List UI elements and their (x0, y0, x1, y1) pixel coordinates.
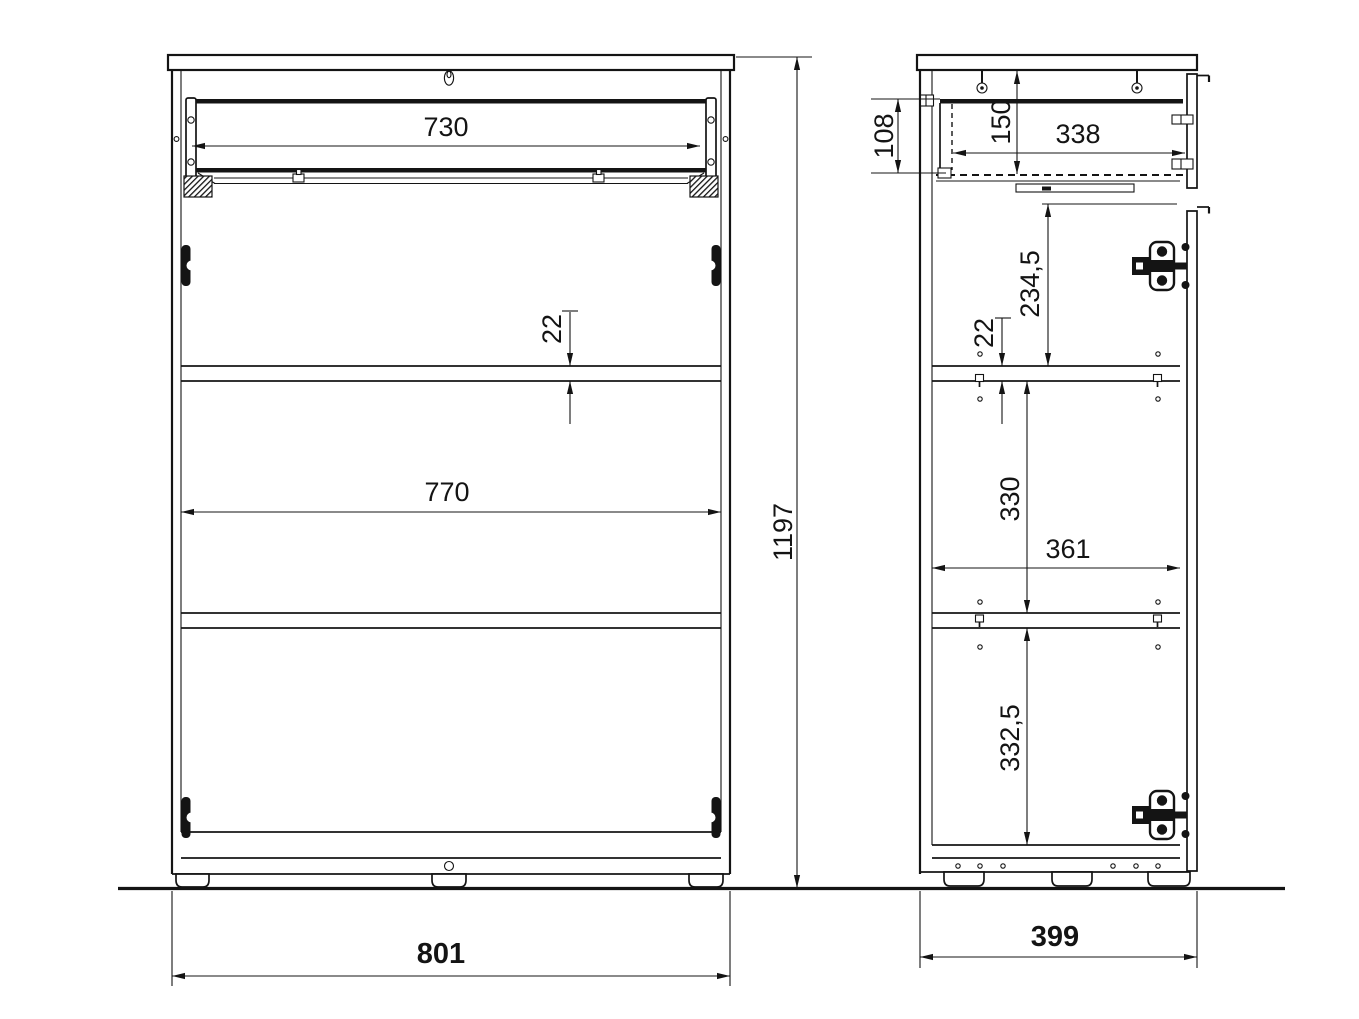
side-view: 108 150 338 234,5 22 330 361 (869, 55, 1209, 968)
cam-screw-icon (977, 70, 987, 93)
dim-label-shelf-thickness-side: 22 (969, 318, 999, 348)
dim-label-drawer-width: 730 (423, 112, 468, 142)
cam-fitting-icon (444, 71, 453, 85)
dim-label-bottom-section-height: 332,5 (995, 704, 1025, 772)
dim-label-overall-width: 801 (417, 938, 465, 970)
dim-label-top-section-height: 234,5 (1015, 250, 1045, 318)
dim-interior-width: 770 (181, 477, 721, 512)
dim-overall-width: 801 (172, 891, 730, 986)
side-drawer-front (1187, 74, 1209, 188)
front-side-walls (172, 70, 730, 874)
side-back-panel (920, 70, 934, 874)
dim-middle-section-height: 330 (995, 381, 1027, 613)
dim-shelf-thickness-side: 22 (969, 318, 1011, 424)
front-top-panel (168, 55, 734, 70)
dim-overall-height: 1197 (736, 57, 812, 888)
foot (432, 874, 466, 887)
side-shelf-2 (932, 613, 1180, 628)
dim-label-drawer-inner-depth: 338 (1055, 119, 1100, 149)
front-view: 730 22 770 1197 801 (168, 55, 812, 986)
hinge-icon-top (1132, 242, 1190, 290)
foot (944, 872, 984, 886)
hinge-plate-top-right (706, 245, 721, 286)
side-base (920, 845, 1190, 886)
foot (1148, 872, 1190, 886)
dim-interior-depth: 361 (932, 534, 1180, 568)
dim-label-shelf-thickness-front: 22 (537, 314, 567, 344)
drawer-slide-bracket-right (690, 176, 718, 197)
foot (176, 874, 209, 887)
dim-label-interior-width: 770 (424, 477, 469, 507)
dim-drawer-width: 730 (192, 112, 700, 146)
cam-screw-icon (1132, 70, 1142, 93)
dim-shelf-thickness-front: 22 (537, 311, 578, 424)
drawer-slide-bracket-left (184, 176, 212, 197)
dim-label-drawer-side-height: 108 (869, 113, 899, 158)
front-base (172, 832, 730, 887)
drawer-front-brackets (1172, 115, 1193, 169)
front-shelf-2 (181, 613, 721, 628)
dim-bottom-section-height: 332,5 (995, 628, 1027, 845)
drawing-canvas: 730 22 770 1197 801 (0, 0, 1359, 1019)
side-shelf-1 (932, 366, 1180, 387)
dim-label-interior-depth: 361 (1045, 534, 1090, 564)
front-shelf-1 (181, 366, 721, 381)
dim-label-overall-depth: 399 (1031, 921, 1079, 953)
foot (1052, 872, 1092, 886)
foot (689, 874, 723, 887)
dim-label-overall-height: 1197 (768, 503, 798, 561)
dim-drawer-front-inner-height: 150 (986, 71, 1017, 174)
hinge-icon-bottom (1132, 791, 1190, 839)
side-top-panel (917, 55, 1197, 70)
dim-label-drawer-front-inner-height: 150 (986, 99, 1016, 144)
hinge-plate-top-left (182, 245, 197, 286)
technical-drawing: 730 22 770 1197 801 (0, 0, 1359, 1019)
dim-drawer-side-height: 108 (869, 99, 946, 173)
dim-label-middle-section-height: 330 (995, 476, 1025, 521)
dim-overall-depth: 399 (920, 891, 1197, 968)
side-door-panel (1187, 207, 1209, 871)
